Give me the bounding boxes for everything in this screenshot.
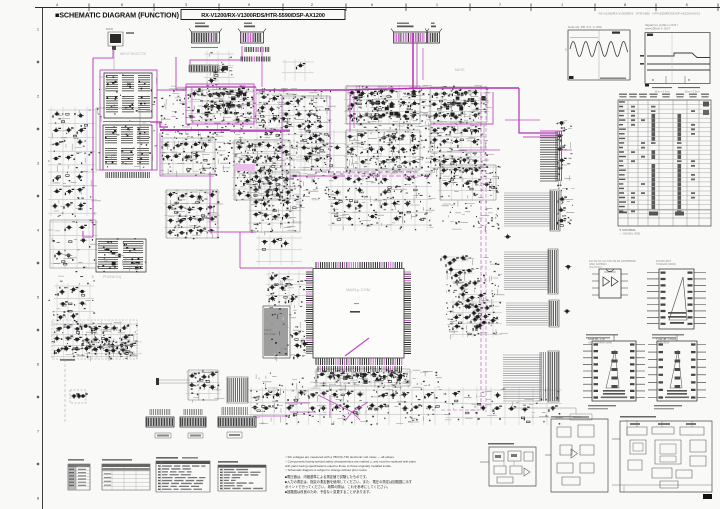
svg-text:MAIN μ COM: MAIN μ COM — [346, 287, 370, 292]
svg-text:RX-V1200/RX-V1300RDS/HTR-5590/: RX-V1200/RX-V1300RDS/HTR-5590/DSP-AX1200 — [201, 13, 325, 19]
svg-text:TC94A21F (MAIN): TC94A21F (MAIN) — [656, 263, 676, 266]
svg-text:MUTE: MUTE — [455, 68, 465, 72]
svg-text:■入力の測定は、指定の測定器を使用してください。また、電圧の: ■入力の測定は、指定の測定器を使用してください。また、電圧の測定は回路図に示す — [285, 479, 413, 484]
svg-text:J: J — [561, 2, 563, 7]
svg-text:■電圧値は、内蔵基準による測定値で試験したものです。: ■電圧値は、内蔵基準による測定値で試験したものです。 — [285, 474, 369, 479]
svg-text:RX-V1200/RX-V1300RDS · HTR-559: RX-V1200/RX-V1300RDS · HTR-5590 · HTR-55… — [599, 12, 701, 16]
svg-text:with parts having specificatio: with parts having specifications equal t… — [285, 464, 392, 468]
svg-text:B: B — [688, 78, 690, 82]
svg-text:TC94 4B · LTD21: TC94 4B · LTD21 — [656, 337, 677, 341]
svg-text:10ms • 0.5ms: 10ms • 0.5ms — [684, 91, 700, 94]
svg-text:MAIN: MAIN — [106, 27, 113, 31]
svg-text:○ Schematic diagram is subjec: ○ Schematic diagram is subject to change… — [285, 468, 368, 472]
svg-text:Node (A): P.B. S.C. ¼ OSC: Node (A): P.B. S.C. ¼ OSC — [568, 25, 602, 29]
svg-text:GSM, 323HW04 (MW): GSM, 323HW04 (MW) — [588, 342, 612, 345]
svg-text:(54LTD BU): (54LTD BU) — [589, 266, 602, 269]
svg-text:○ DC voltages are measured wi: ○ DC voltages are measured with a 780V(C… — [285, 455, 395, 459]
svg-text:○ Components having special s: ○ Components having special safety chara… — [285, 459, 416, 463]
svg-text:K: K — [686, 2, 689, 7]
svg-text:■回路図は改良のため、予告なく変更することがあります。: ■回路図は改良のため、予告なく変更することがあります。 — [285, 489, 372, 494]
svg-text:INPUT SELECTIN: INPUT SELECTIN — [120, 52, 147, 56]
svg-text:POWER: POWER — [268, 386, 278, 390]
svg-text:10ms • 0.5ms: 10ms • 0.5ms — [654, 91, 670, 94]
svg-text:■SCHEMATIC DIAGRAM (FUNCTION): ■SCHEMATIC DIAGRAM (FUNCTION) — [55, 11, 180, 20]
svg-text:ボイントで行ってください。故障の際は、これを参考にしてくださ: ボイントで行ってください。故障の際は、これを参考にしてください。 — [285, 484, 390, 489]
svg-text:GSM 4B · LTD: GSM 4B · LTD — [588, 337, 605, 341]
svg-text:(TOP VIEW): (TOP VIEW) — [656, 342, 669, 345]
svg-text:PHONO EQ: PHONO EQ — [103, 275, 122, 279]
svg-text:vert=200mV ¼ OUT: vert=200mV ¼ OUT — [645, 27, 670, 31]
svg-text:○ : SIGNAL GND: ○ : SIGNAL GND — [619, 232, 640, 236]
svg-text:B: B — [652, 78, 654, 82]
